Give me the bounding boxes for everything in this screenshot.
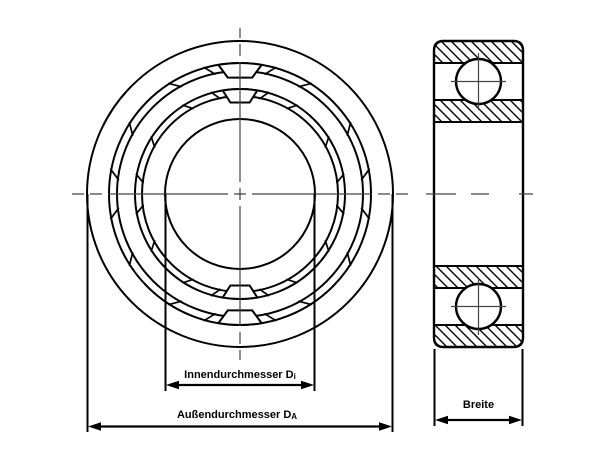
cage-divider bbox=[129, 122, 132, 136]
cage-divider bbox=[264, 67, 276, 74]
cage-divider bbox=[168, 83, 182, 86]
bearing-drawing-page: Innendurchmesser Di Außendurchmesser DA … bbox=[0, 0, 600, 470]
cage-divider bbox=[347, 252, 350, 266]
cage-divider bbox=[325, 136, 329, 147]
inner-diameter-label: Innendurchmesser Di bbox=[184, 369, 296, 381]
cage-divider bbox=[361, 169, 369, 180]
cage-divider bbox=[168, 301, 182, 304]
cage-divider bbox=[286, 279, 297, 283]
side-view bbox=[426, 41, 533, 347]
arrowhead-left-icon bbox=[166, 381, 179, 390]
arrowhead-left-icon bbox=[435, 416, 448, 425]
cage-divider bbox=[286, 105, 297, 109]
cage-divider bbox=[129, 252, 132, 266]
outer-diameter-label: Außendurchmesser DA bbox=[177, 409, 297, 421]
cage-divider bbox=[361, 208, 369, 219]
cage-divider bbox=[151, 240, 155, 251]
cage-divider bbox=[110, 208, 118, 219]
cage-divider bbox=[259, 289, 269, 296]
cage-divider bbox=[204, 67, 216, 74]
width-label: Breite bbox=[463, 399, 494, 411]
cage-divider bbox=[204, 314, 216, 321]
cage-divider bbox=[298, 301, 312, 304]
arrowhead-left-icon bbox=[88, 422, 101, 431]
cage-divider bbox=[264, 314, 276, 321]
cage-divider bbox=[211, 92, 221, 99]
cage-divider bbox=[182, 279, 193, 283]
cage-divider bbox=[211, 289, 221, 296]
cage-divider bbox=[259, 92, 269, 99]
bearing-technical-drawing: Innendurchmesser Di Außendurchmesser DA … bbox=[0, 0, 600, 470]
cage-divider bbox=[151, 136, 155, 147]
front-view-centerlines bbox=[72, 28, 408, 360]
arrowhead-right-icon bbox=[509, 416, 522, 425]
cage-divider bbox=[182, 105, 193, 109]
cage-divider bbox=[110, 169, 118, 180]
cage-divider bbox=[347, 122, 350, 136]
arrowhead-right-icon bbox=[379, 422, 392, 431]
cage-divider bbox=[298, 83, 312, 86]
arrowhead-right-icon bbox=[301, 381, 314, 390]
cage-divider bbox=[325, 240, 329, 251]
